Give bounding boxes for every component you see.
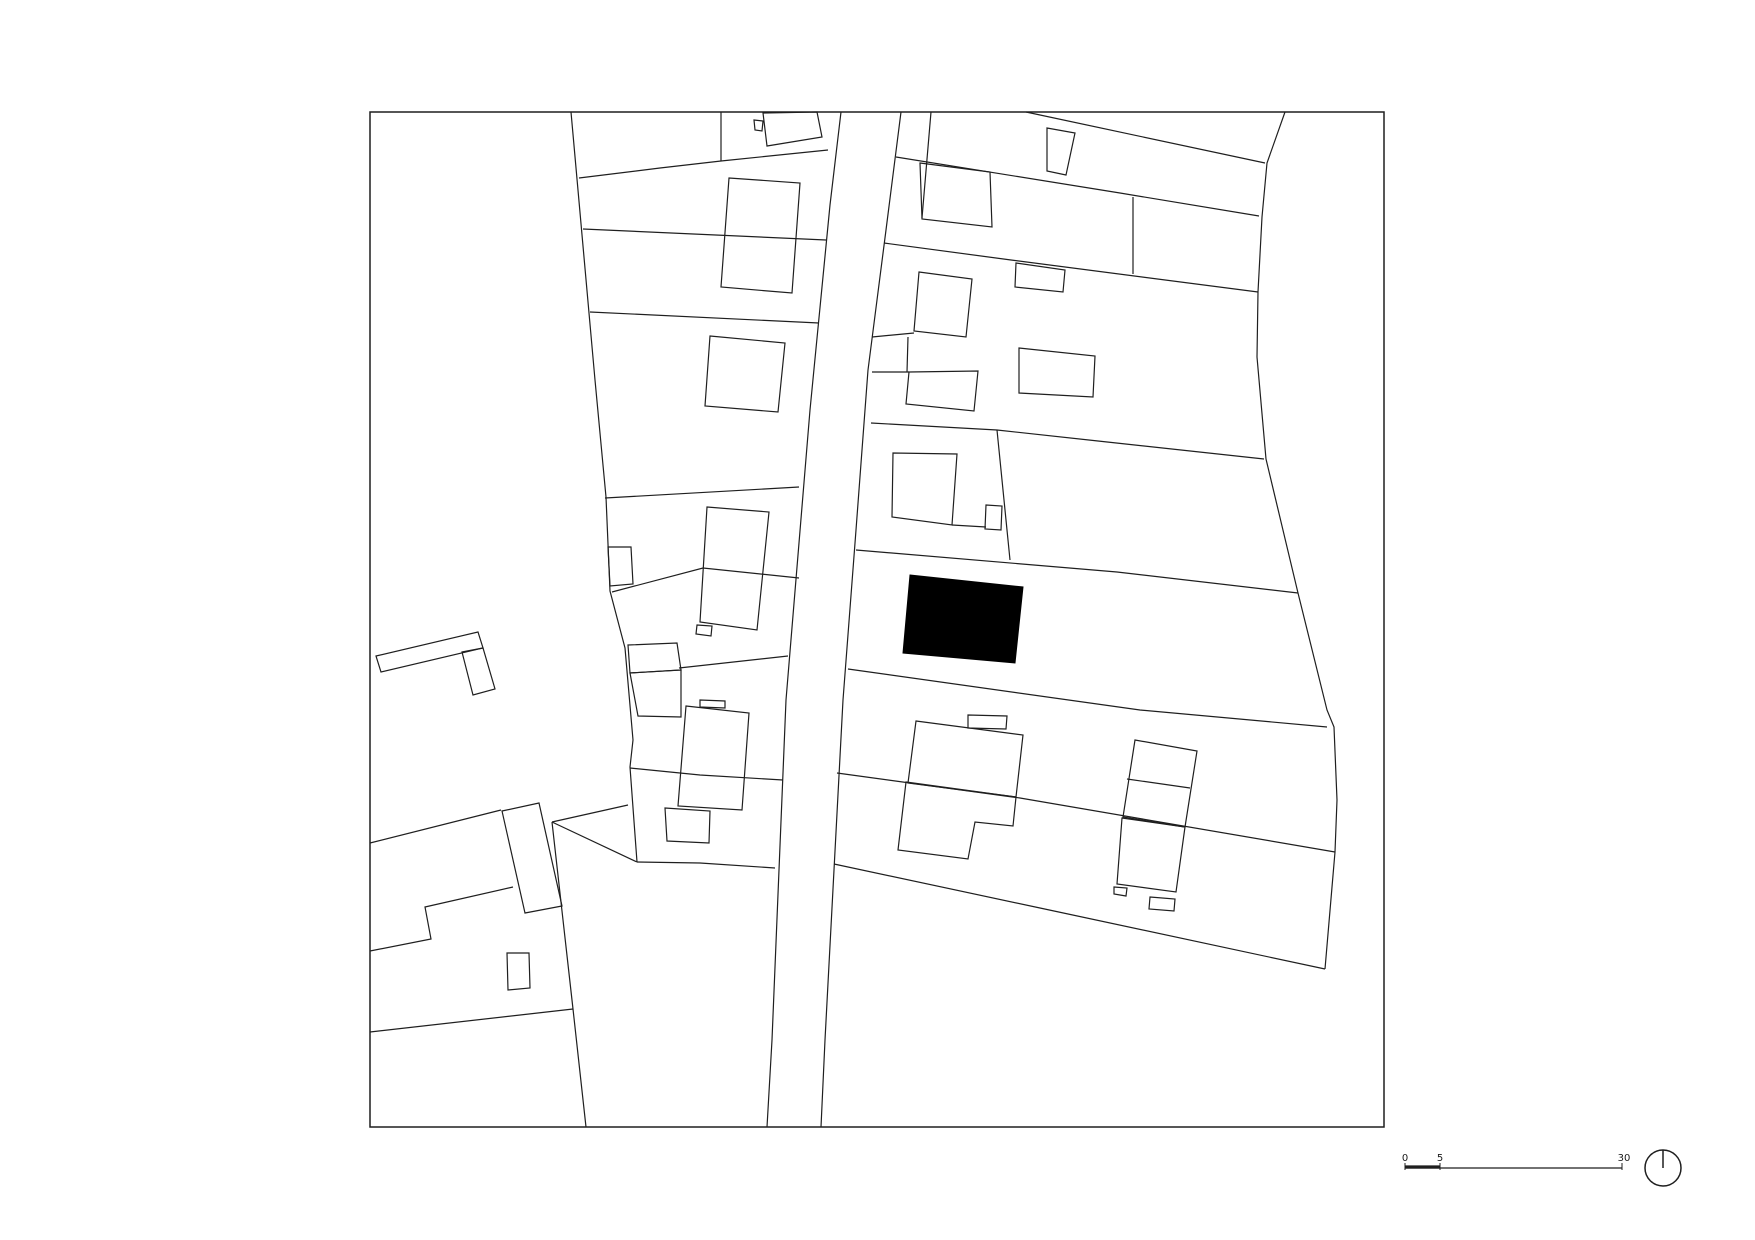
- parcel-line: [590, 312, 819, 323]
- building-outline: [968, 715, 1007, 729]
- parcel-line: [997, 430, 1010, 560]
- building-outline: [908, 721, 1023, 797]
- building-outline: [914, 272, 972, 337]
- parcel-line: [612, 568, 799, 592]
- building-outline: [1047, 128, 1075, 175]
- building-outline: [906, 371, 978, 411]
- parcel-line: [552, 822, 586, 1127]
- parcel-line: [370, 810, 501, 843]
- north-arrow-icon: [1645, 1150, 1681, 1186]
- parcel-line: [872, 333, 914, 337]
- road-left-edge: [767, 112, 841, 1127]
- site-plan-drawing: 0 5 30: [0, 0, 1755, 1240]
- building-outline: [608, 547, 633, 586]
- building-outline: [462, 648, 495, 695]
- building-outline: [985, 505, 1002, 530]
- building-outline: [754, 120, 763, 131]
- building-outline: [763, 112, 822, 146]
- building-outline: [628, 643, 681, 673]
- road-right-edge: [821, 112, 901, 1127]
- parcel-line: [884, 243, 1258, 292]
- building-outline: [920, 163, 992, 227]
- parcel-line: [848, 669, 1327, 727]
- building-outline: [700, 700, 725, 708]
- building-outline: [705, 336, 785, 412]
- parcel-line: [605, 487, 799, 498]
- road-edges: [767, 112, 901, 1127]
- parcel-line: [630, 768, 783, 780]
- building-outline: [502, 803, 562, 913]
- building-outline: [1015, 263, 1065, 292]
- scale-label-5: 5: [1437, 1153, 1443, 1164]
- building-outline: [892, 453, 957, 525]
- building-outline: [376, 632, 483, 672]
- scale-label-0: 0: [1402, 1153, 1408, 1164]
- building-outline: [665, 808, 710, 843]
- building-outline: [630, 670, 681, 717]
- parcel-line: [571, 112, 637, 862]
- subject-building-footprint: [903, 575, 1023, 663]
- building-footprints: [376, 112, 1197, 990]
- parcel-line: [907, 337, 908, 372]
- parcel-line: [837, 773, 1335, 852]
- building-outline: [1117, 818, 1185, 892]
- parcel-line: [896, 157, 1259, 216]
- building-outline: [1019, 348, 1095, 397]
- parcel-line: [552, 805, 628, 822]
- building-outline: [678, 706, 749, 810]
- parcel-line: [679, 656, 788, 668]
- scale-label-30: 30: [1618, 1153, 1631, 1164]
- building-outline: [696, 625, 712, 636]
- parcel-line: [583, 229, 826, 240]
- scale-bar: 0 5 30: [1402, 1153, 1631, 1170]
- parcel-line: [552, 822, 637, 862]
- parcel-line: [834, 864, 1325, 969]
- site-plan-page: 0 5 30: [0, 0, 1755, 1240]
- parcel-line: [370, 1009, 573, 1032]
- parcel-line: [1026, 112, 1265, 163]
- parcel-line: [922, 112, 931, 218]
- building-outline: [1114, 887, 1127, 896]
- parcel-line: [952, 525, 986, 527]
- parcel-line: [637, 862, 775, 868]
- parcel-line: [370, 887, 513, 951]
- building-outline: [507, 953, 530, 990]
- building-outline: [898, 782, 1016, 859]
- parcel-boundary-lines: [370, 112, 1335, 1127]
- plan-frame: [370, 112, 1384, 1127]
- parcel-line: [1127, 779, 1190, 788]
- building-outline: [1149, 897, 1175, 911]
- parcel-line: [579, 150, 828, 178]
